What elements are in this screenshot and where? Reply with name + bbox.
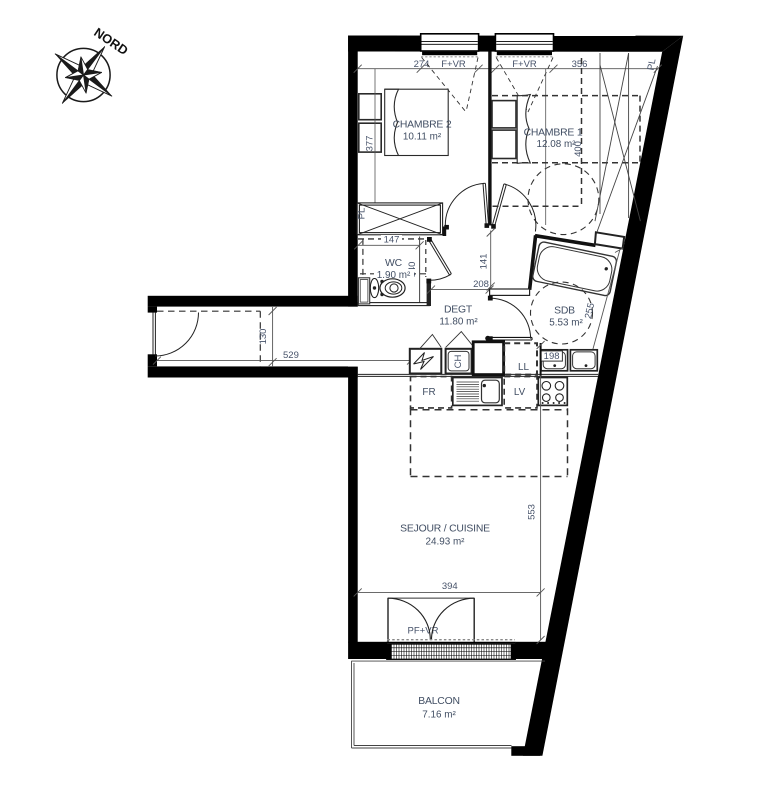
svg-text:529: 529 (283, 350, 299, 361)
svg-text:208: 208 (473, 279, 489, 290)
svg-text:7.16 m²: 7.16 m² (422, 710, 456, 721)
svg-text:PL: PL (357, 208, 368, 220)
svg-text:WC: WC (385, 258, 403, 269)
svg-text:1.90 m²: 1.90 m² (377, 270, 411, 281)
svg-text:356: 356 (572, 59, 588, 70)
svg-text:24.93 m²: 24.93 m² (426, 537, 466, 548)
svg-text:LL: LL (518, 362, 529, 373)
svg-text:553: 553 (527, 504, 538, 520)
svg-text:CH: CH (453, 355, 464, 369)
svg-text:141: 141 (479, 254, 490, 270)
svg-text:12.08 m²: 12.08 m² (537, 139, 577, 150)
svg-text:CHAMBRE 1: CHAMBRE 1 (524, 128, 583, 139)
svg-text:CHAMBRE 2: CHAMBRE 2 (393, 120, 452, 131)
svg-text:F+VR: F+VR (441, 59, 466, 70)
svg-text:147: 147 (384, 235, 400, 246)
svg-text:DEGT: DEGT (444, 305, 473, 316)
svg-text:LV: LV (514, 387, 526, 398)
svg-text:377: 377 (365, 136, 376, 152)
svg-text:5.53 m²: 5.53 m² (549, 318, 583, 329)
svg-text:198: 198 (544, 351, 560, 362)
svg-text:BALCON: BALCON (418, 696, 460, 707)
svg-text:SDB: SDB (554, 306, 575, 317)
svg-text:F+VR: F+VR (512, 59, 537, 70)
svg-text:FR: FR (422, 387, 435, 398)
svg-text:394: 394 (442, 581, 458, 592)
svg-text:11.80 m²: 11.80 m² (439, 317, 478, 328)
svg-text:130: 130 (258, 329, 269, 345)
svg-text:10.11 m²: 10.11 m² (403, 132, 442, 143)
svg-text:SEJOUR / CUISINE: SEJOUR / CUISINE (400, 524, 490, 535)
